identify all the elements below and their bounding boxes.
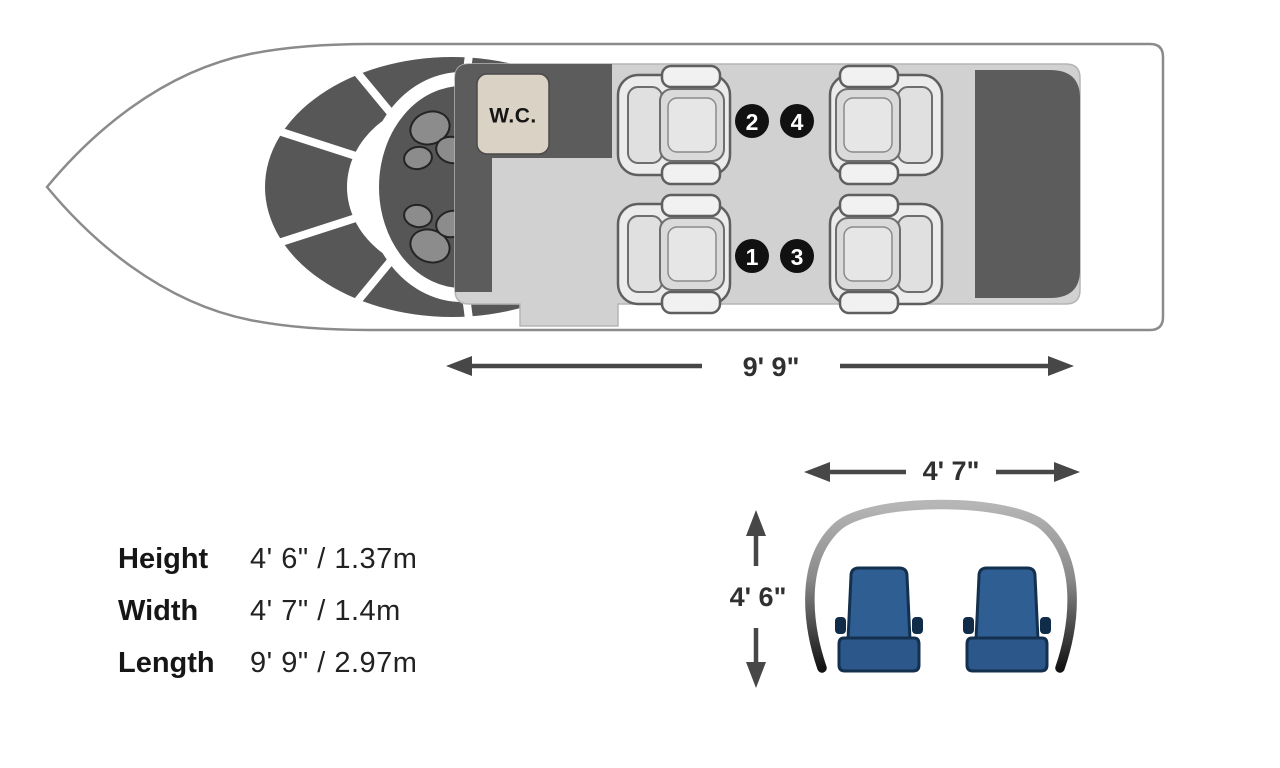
arrow-right-icon [1054,462,1080,482]
width-dimension-label: 4' 7" [923,456,980,486]
seat-badge-2: 2 [746,109,759,135]
height-dimension-label: 4' 6" [730,582,787,612]
seat-badge-3: 3 [791,244,804,270]
spec-row-length: Length 9' 9" / 2.97m [118,637,417,689]
cross-section-seat-left [835,568,923,671]
passenger-seat-3 [830,195,942,313]
seat-badge-4: 4 [791,109,804,135]
arrow-up-icon [746,510,766,536]
spec-label: Height [118,543,250,576]
arrow-left-icon [804,462,830,482]
passenger-seat-2 [618,66,730,184]
passenger-seat-1 [618,195,730,313]
spec-row-width: Width 4' 7" / 1.4m [118,585,417,637]
cross-section-seat-right [963,568,1051,671]
spec-value: 4' 6" / 1.37m [250,543,417,576]
arrow-left-icon [446,356,472,376]
length-dimension-label: 9' 9" [743,352,800,382]
aircraft-cabin-diagram: W.C. 2 4 1 3 9' 9" [0,0,1280,768]
wc-label: W.C. [489,105,537,128]
spec-value: 9' 9" / 2.97m [250,647,417,680]
spec-label: Length [118,647,250,680]
arrow-right-icon [1048,356,1074,376]
arrow-down-icon [746,662,766,688]
seat-badge-1: 1 [746,244,759,270]
spec-label: Width [118,595,250,628]
aft-baggage-block [975,70,1080,298]
spec-list: Height 4' 6" / 1.37m Width 4' 7" / 1.4m … [118,533,417,689]
spec-value: 4' 7" / 1.4m [250,595,417,628]
spec-row-height: Height 4' 6" / 1.37m [118,533,417,585]
passenger-seat-4 [830,66,942,184]
